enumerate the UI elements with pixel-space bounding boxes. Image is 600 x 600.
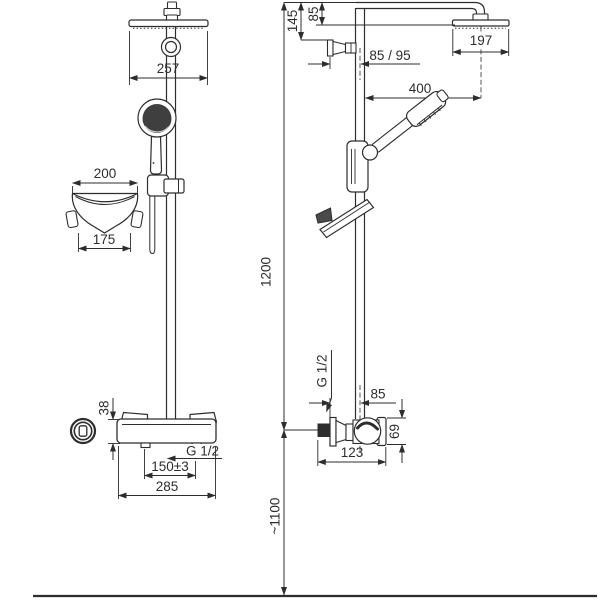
- dim-label-arm-drop: 145: [285, 10, 300, 33]
- dish-clamp-side: [316, 208, 332, 223]
- dim-label-mixer-width: 285: [156, 479, 179, 494]
- thread-label-side-text: G 1/2: [315, 354, 330, 387]
- dim-head-drop: 85: [306, 3, 455, 26]
- inlet-stub-left: [141, 443, 150, 448]
- dim-label-wall-clearance: 85 / 95: [369, 48, 410, 63]
- thread-label-side: G 1/2: [315, 350, 332, 412]
- dim-label-wall-to-center: 85: [370, 387, 385, 402]
- holder-joint: [363, 145, 378, 160]
- dim-label-dish-bottom: 175: [93, 232, 116, 247]
- side-view: 197 145 85 1200 ~1100: [259, 3, 510, 596]
- dim-label-head-depth: 197: [470, 33, 493, 48]
- dim-label-valve-depth: 123: [341, 445, 364, 460]
- top-swivel-fitting: [164, 2, 180, 21]
- dim-wall-to-center: 85: [309, 387, 396, 418]
- dim-label-valve-height: 69: [387, 424, 402, 439]
- hand-shower-side: [347, 87, 452, 192]
- dim-label-inlet-spacing: 150±3: [151, 459, 188, 474]
- front-view: 257 200: [66, 2, 225, 499]
- arm-end-joint: [162, 38, 181, 57]
- dim-head-depth: 197: [453, 29, 509, 56]
- dish-clip-right: [131, 210, 144, 227]
- valve-flange: [330, 418, 336, 447]
- dim-label-dish-top: 200: [94, 166, 117, 181]
- dim-valve-height: 69: [387, 399, 406, 463]
- hand-shower-front: [138, 99, 184, 254]
- dim-label-column-height: 1200: [259, 257, 274, 287]
- dim-label-head-drop: 85: [306, 6, 321, 21]
- dim-label-arm-reach: 400: [409, 81, 432, 96]
- thread-label-front: G 1/2: [168, 444, 226, 459]
- dim-dish-top-width: 200: [73, 166, 138, 196]
- hand-shower-handle: [151, 136, 162, 174]
- shower-hose: [150, 196, 155, 254]
- knob-face-symbol: [71, 419, 95, 443]
- thread-label-front-text: G 1/2: [186, 444, 219, 459]
- dim-label-mixer-height: 38: [97, 400, 112, 415]
- dim-label-valve-to-floor: ~1100: [268, 498, 283, 535]
- side-column-pipe: [356, 8, 365, 452]
- dim-label-head-width: 257: [157, 61, 180, 76]
- dim-arm-reach: 400: [366, 81, 482, 98]
- dish-clip-left: [66, 210, 79, 227]
- soap-dish-front-detail: 200 175: [66, 166, 144, 252]
- dim-dish-bottom-width: 175: [79, 232, 131, 252]
- rain-shower-head-front: [129, 20, 208, 57]
- dim-column-height: 1200: [259, 3, 319, 431]
- wall-bracket-top: [328, 40, 357, 56]
- drawing-page: 257 200: [0, 0, 600, 600]
- supply-connection: [318, 424, 331, 438]
- rain-shower-head-side: [453, 20, 510, 26]
- wall-valve-side: [318, 418, 387, 447]
- dim-valve-to-floor: ~1100: [268, 430, 285, 595]
- shower-system-technical-drawing: 257 200: [0, 0, 600, 600]
- front-column-pipe: [167, 20, 176, 419]
- mixer-body: [117, 419, 216, 443]
